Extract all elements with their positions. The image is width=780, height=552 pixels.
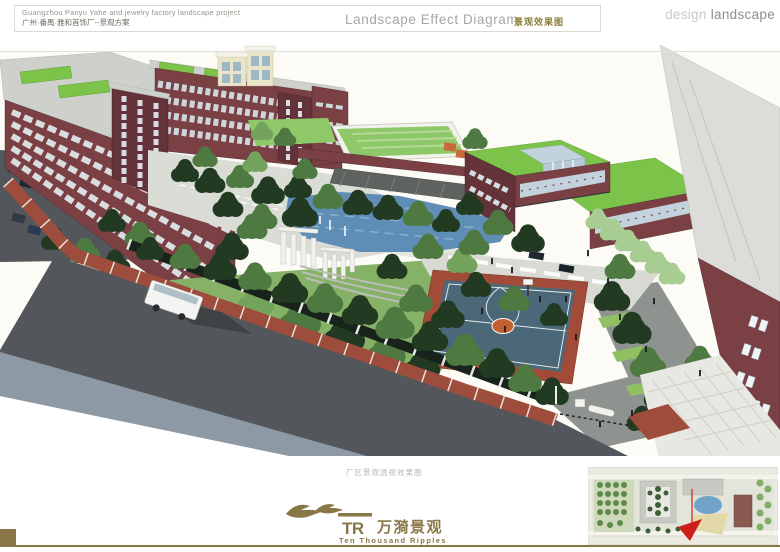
project-title: Guangzhou Panyu Yahe and jewelry factory… — [22, 8, 240, 28]
header-rule — [0, 51, 780, 52]
footer-gold-line — [0, 545, 780, 547]
image-caption: 厂区景观透视效果图 — [346, 467, 423, 478]
sheet-title-en: Landscape Effect Diagram — [345, 12, 518, 27]
presentation-board: Guangzhou Panyu Yahe and jewelry factory… — [0, 0, 780, 552]
brand-landscape: landscape — [711, 7, 775, 22]
brand-design: design — [665, 7, 707, 22]
penthouse — [216, 46, 275, 86]
footer-gold-square — [0, 529, 16, 545]
company-logo: TR 万漪景观 Ten Thousand Ripples — [282, 500, 452, 546]
logo-cn: 万漪景观 — [376, 518, 443, 536]
keymap-pool — [694, 496, 722, 514]
birds-icon — [286, 504, 343, 518]
studio-brand: design landscape — [665, 7, 775, 22]
sheet-title-cn: 景观效果图 — [514, 15, 564, 28]
site-key-map — [588, 467, 778, 545]
project-title-en: Guangzhou Panyu Yahe and jewelry factory… — [22, 8, 240, 18]
title-block: Guangzhou Panyu Yahe and jewelry factory… — [14, 5, 601, 32]
guard-booth — [575, 399, 585, 407]
logo-en: Ten Thousand Ripples — [339, 536, 447, 545]
project-title-cn: 广州·番禺·雅和首饰厂--景观方案 — [22, 18, 240, 28]
center-circle — [492, 319, 514, 334]
logo-monogram: TR — [338, 513, 372, 538]
